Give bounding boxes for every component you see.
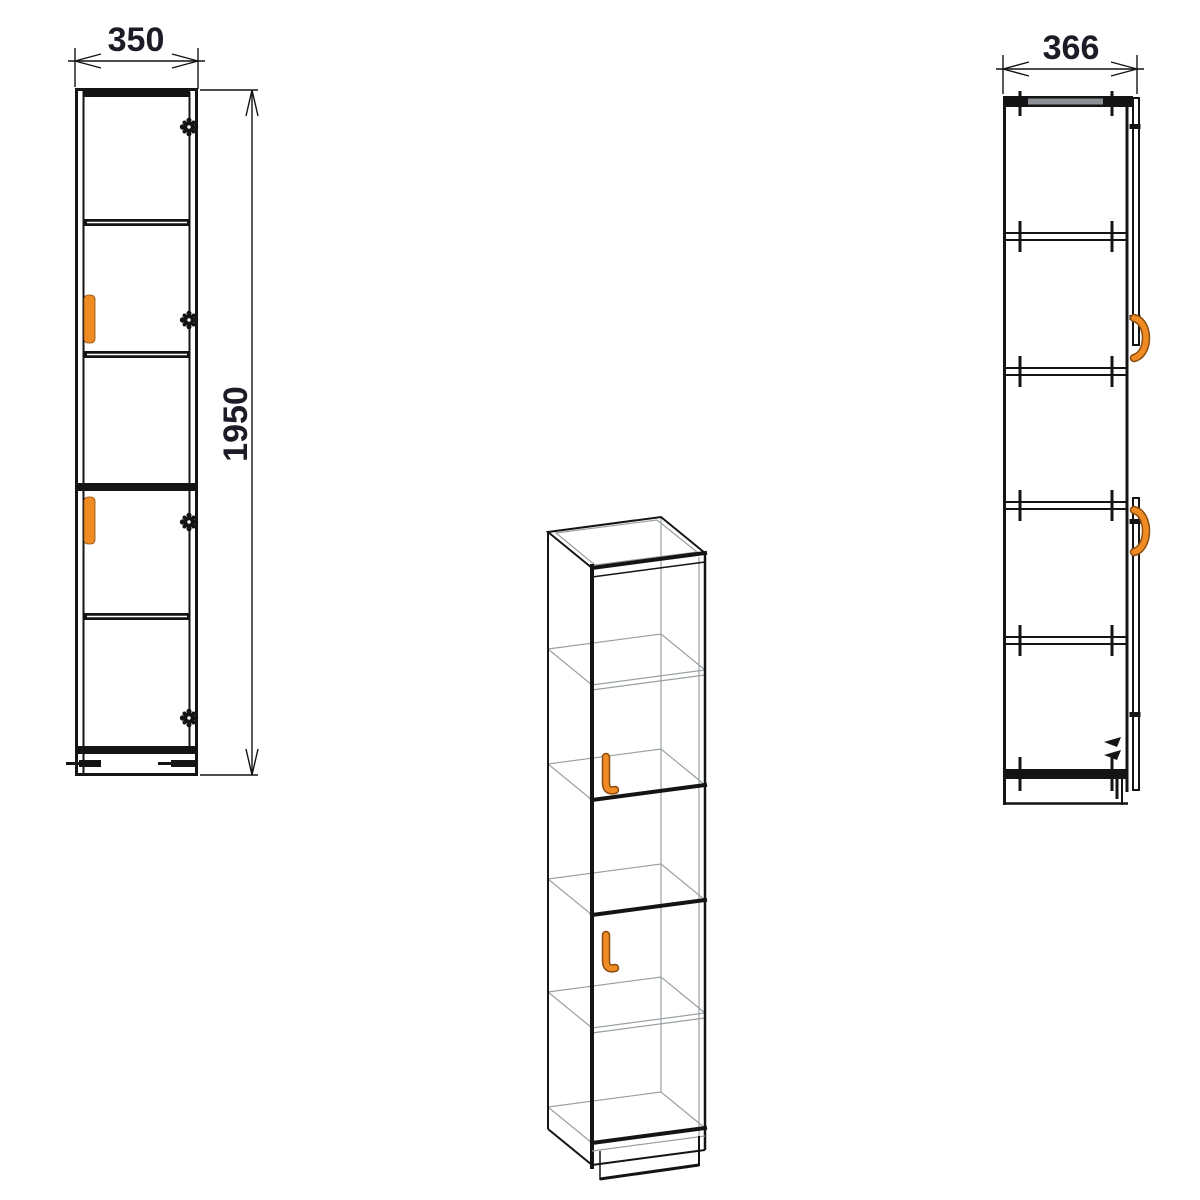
niche-bottom-panel (75, 483, 198, 491)
front-height-label: 1950 (217, 386, 255, 462)
top-face-outer (548, 517, 705, 568)
door-handle (606, 935, 615, 968)
shelf-line (1004, 233, 1127, 240)
bottom-panel (75, 746, 198, 754)
side-view: 366 (996, 29, 1146, 805)
shelf-line (84, 613, 190, 620)
cabinet-outline (77, 90, 197, 775)
lower-door-edge (1130, 497, 1141, 790)
door-handle (606, 757, 615, 790)
fastener-arrow-icon (1104, 737, 1121, 747)
top-front-edge (592, 553, 705, 568)
bottom-panel (1004, 769, 1127, 779)
shelf-line (84, 219, 190, 226)
front-view: 350 1950 (66, 21, 258, 775)
door-handle (84, 497, 95, 544)
hinge-plate (1130, 712, 1141, 717)
foot-right (171, 760, 196, 767)
cabinet-technical-drawing: 350 1950 (0, 0, 1200, 1200)
hinge-plate (1130, 124, 1141, 129)
top-panel (84, 91, 190, 97)
front-width-label: 350 (108, 21, 165, 59)
screw-marks (1020, 91, 1117, 799)
feet (66, 760, 196, 767)
isometric-view (548, 517, 705, 1180)
shelf-line (1004, 502, 1127, 509)
top-panel-core (1028, 99, 1103, 105)
shelf-line (1004, 368, 1127, 375)
shelf-line (84, 351, 190, 358)
foot-left (79, 760, 101, 767)
side-depth-label: 366 (1043, 29, 1100, 67)
hinge-plate (1130, 519, 1141, 524)
lower-door-bottom-edge (592, 1128, 705, 1143)
lower-door-top-edge (592, 900, 705, 915)
door-handle (84, 295, 95, 343)
front-height-dimension: 1950 (200, 90, 258, 775)
side-depth-dimension: 366 (996, 29, 1144, 94)
shelf-line (1004, 637, 1127, 644)
upper-door-edge (1130, 97, 1141, 345)
front-width-dimension: 350 (68, 21, 205, 89)
shelf-wireframe (548, 634, 705, 1143)
